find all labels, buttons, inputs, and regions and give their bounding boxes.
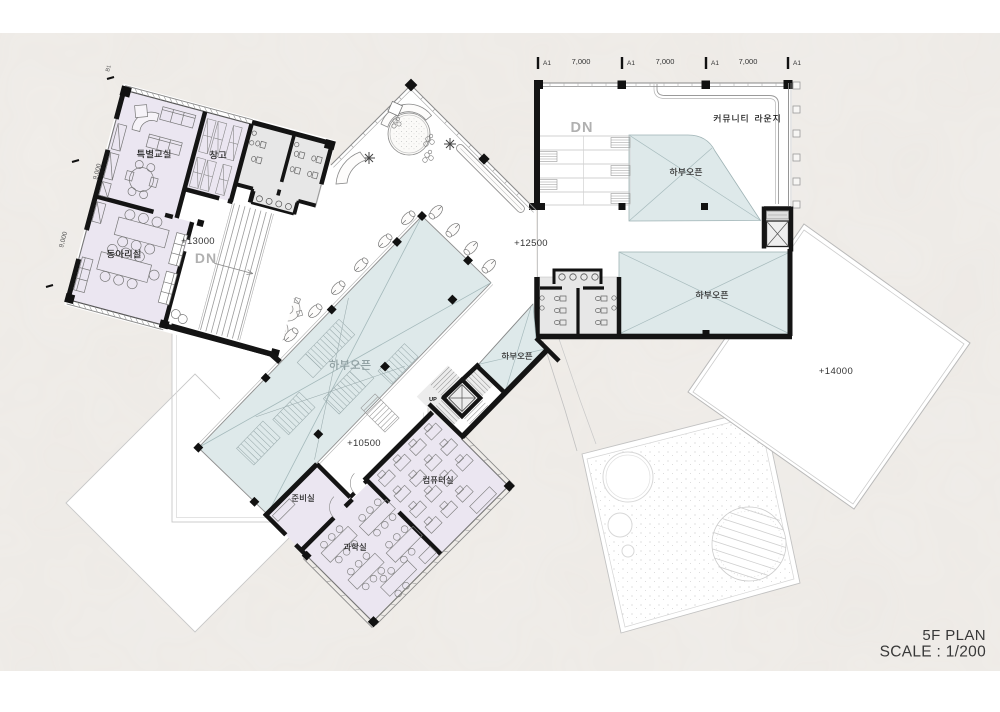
svg-text:UP: UP	[429, 397, 437, 403]
svg-text:+13000: +13000	[181, 236, 215, 247]
svg-text:A1: A1	[711, 60, 719, 67]
svg-text:DN: DN	[571, 120, 594, 136]
svg-text:A1: A1	[543, 60, 551, 67]
svg-text:7,000: 7,000	[572, 57, 591, 66]
svg-text:A1: A1	[627, 60, 635, 67]
svg-text:A1: A1	[793, 60, 801, 67]
svg-text:+10500: +10500	[347, 438, 381, 449]
svg-text:+14000: +14000	[819, 366, 853, 377]
svg-text:+12500: +12500	[514, 238, 548, 249]
svg-text:5F PLAN: 5F PLAN	[922, 627, 986, 644]
svg-text:7,000: 7,000	[656, 57, 675, 66]
svg-text:7,000: 7,000	[739, 57, 758, 66]
svg-text:DN: DN	[195, 250, 217, 266]
svg-text:SCALE : 1/200: SCALE : 1/200	[880, 644, 987, 661]
